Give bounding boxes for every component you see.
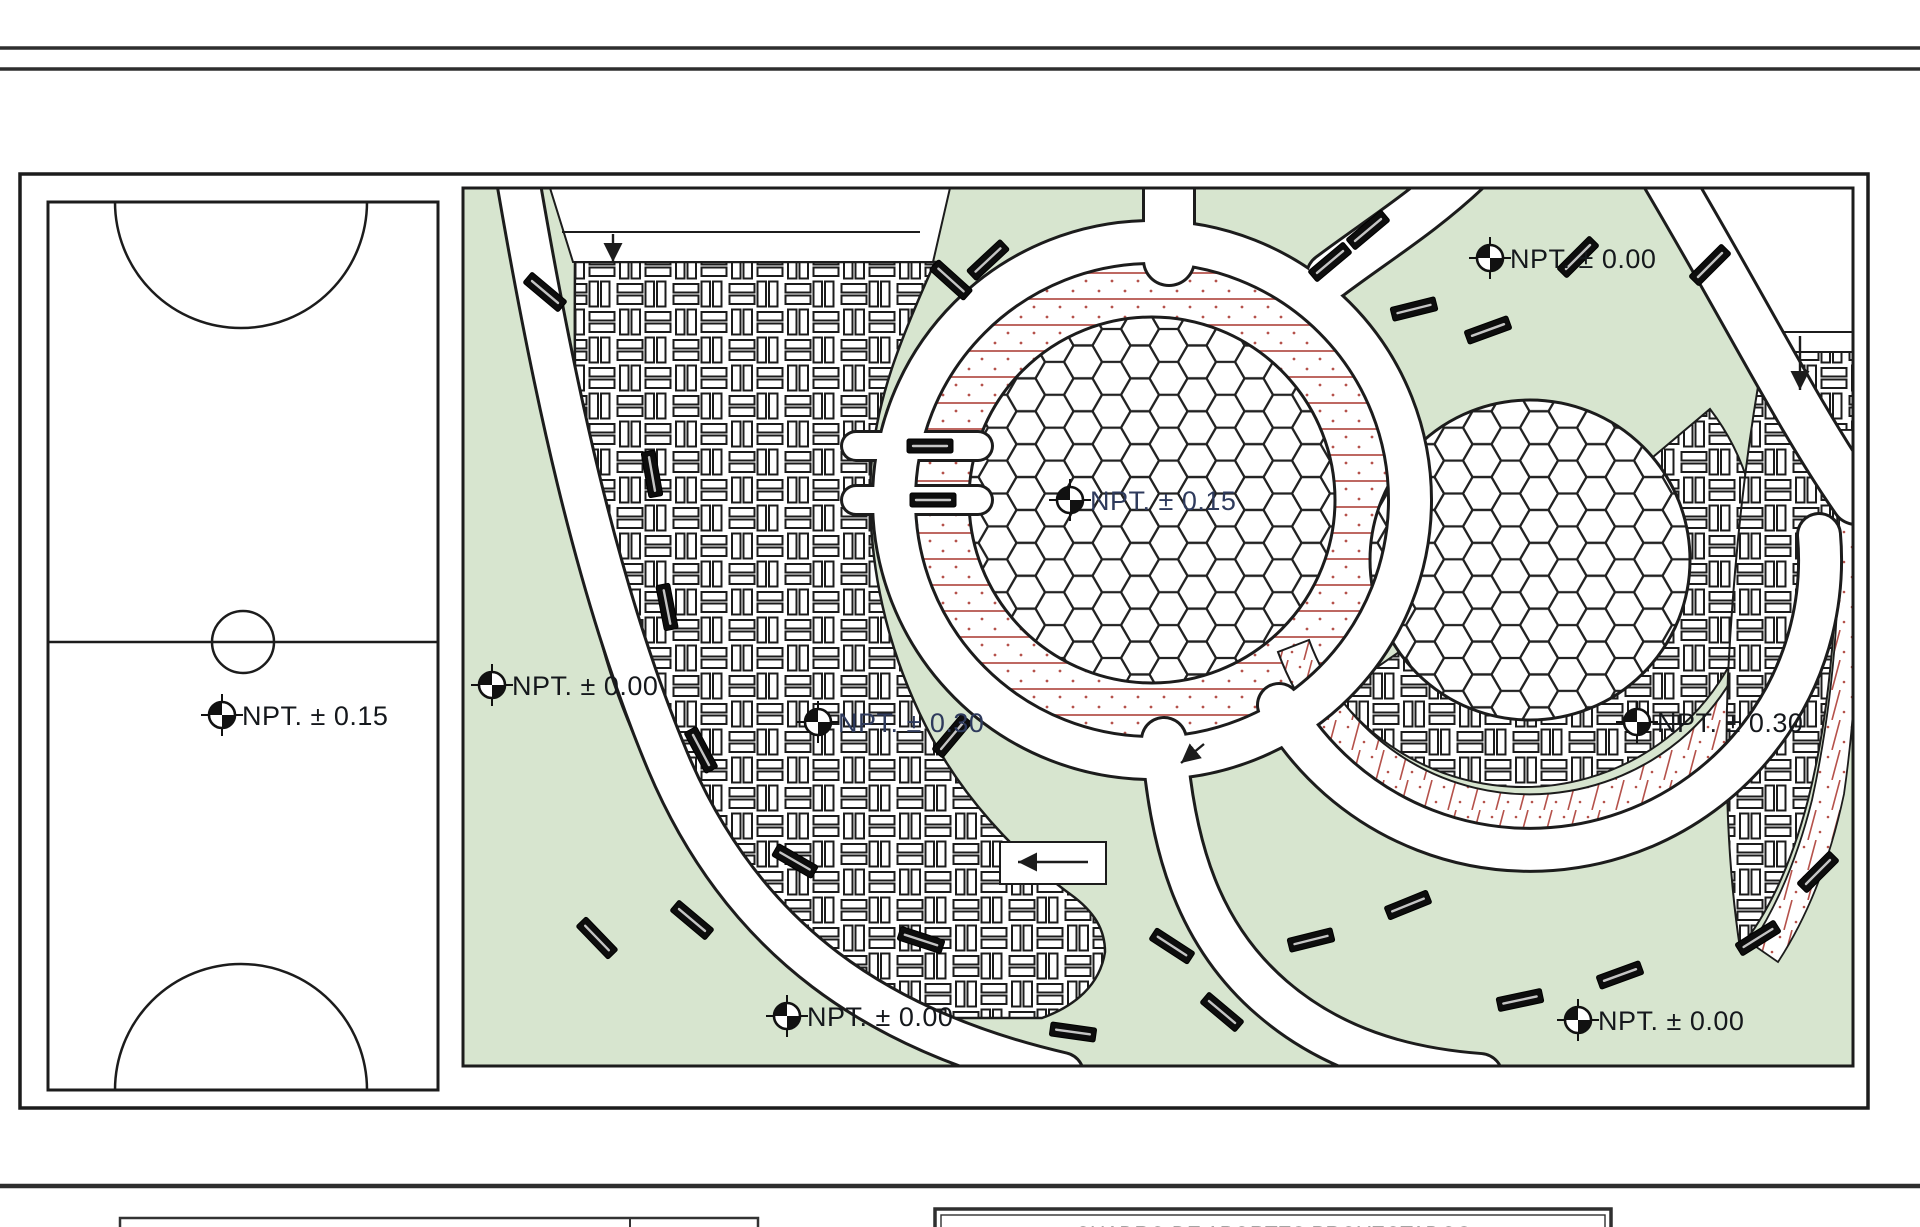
elevation-label-text: NPT. ± 0.00: [807, 1002, 953, 1032]
elevation-label-text: NPT. ± 0.30: [1657, 708, 1803, 738]
sports-court: [48, 202, 438, 1090]
right-table-title-clipped: CUADRO DE APORTES PROYECTADOS: [1075, 1223, 1471, 1227]
elevation-label-text: NPT. ± 0.00: [1598, 1006, 1744, 1036]
elevation-label-text: NPT. ± 0.00: [512, 671, 658, 701]
bench: [910, 493, 956, 507]
bench: [907, 439, 953, 453]
site-plan-sheet: NPT. ± 0.15NPT. ± 0.00NPT. ± 0.30NPT. ± …: [0, 0, 1920, 1227]
elevation-label-text: NPT. ± 0.30: [838, 708, 984, 738]
park-area: [463, 166, 1858, 1076]
elevation-label-text: NPT. ± 0.00: [1510, 244, 1656, 274]
north-entry-band: [550, 188, 950, 262]
elevation-label-text: NPT. ± 0.15: [242, 701, 388, 731]
court-boundary: [48, 202, 438, 1090]
left-table: [120, 1218, 758, 1227]
elevation-label-text: NPT. ± 0.15: [1090, 486, 1236, 516]
